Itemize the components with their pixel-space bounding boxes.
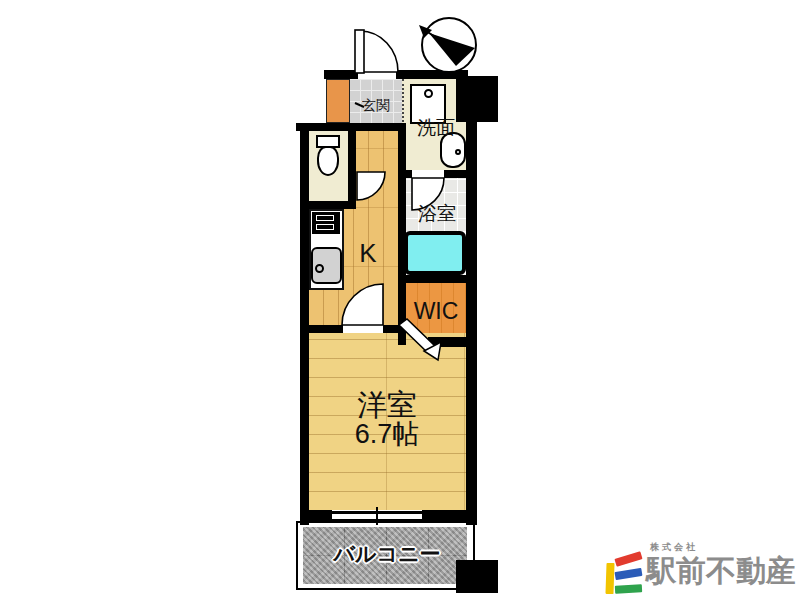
entrance-door-leaf (355, 30, 364, 73)
wic-label: WIC (414, 298, 459, 325)
senmen-label: 洗面 (417, 115, 455, 141)
western-room-size: 6.7帖 (355, 416, 420, 452)
balcony-label: バルコニー (334, 540, 441, 568)
doors-and-compass-overlay (0, 0, 800, 600)
company-name: 駅前不動産 (646, 551, 796, 592)
kitchen-label: K (359, 238, 376, 269)
room-door-arc (342, 284, 383, 325)
logo-bar-green (615, 584, 642, 593)
bathroom-label: 浴室 (418, 201, 456, 227)
entrance-door-arc (360, 31, 398, 72)
logo-bar-yellow (605, 563, 614, 594)
hall-door-arc (357, 172, 385, 200)
floorplan-page: 玄関 洗面 浴室 K WIC 洋室 6.7帖 バルコニー 株式会社 駅前不動産 (0, 0, 800, 600)
genkan-label: 玄関 (362, 97, 390, 115)
